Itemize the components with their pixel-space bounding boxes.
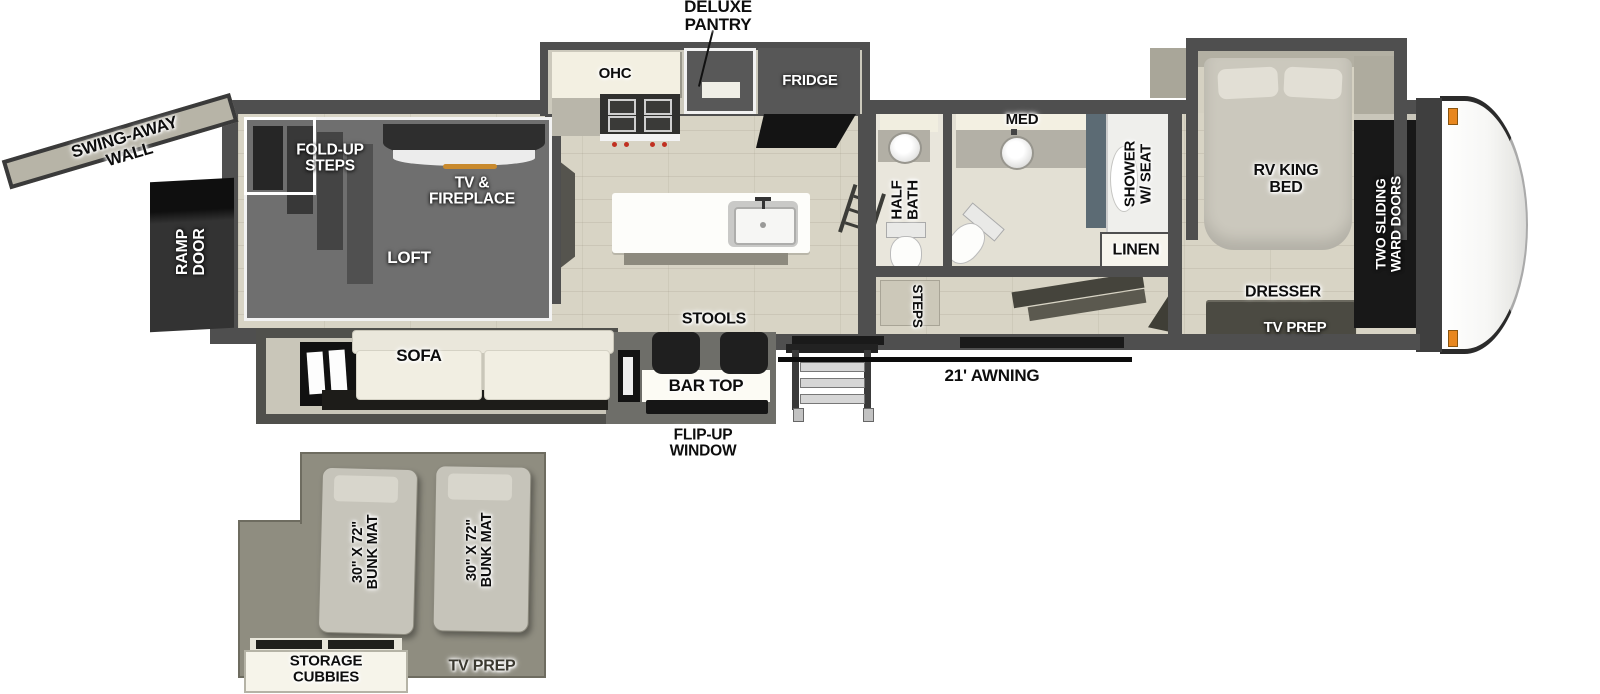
stove-knob (650, 142, 655, 147)
counter-left (552, 98, 602, 136)
ohc-label: OHC (599, 66, 632, 82)
pillow (1217, 66, 1278, 99)
tv-prep-bedroom-label: TV PREP (1264, 320, 1327, 336)
loft-label: LOFT (387, 249, 431, 267)
med-label: MED (1006, 112, 1039, 128)
bath-bedroom-wall (1168, 107, 1182, 334)
stool (652, 332, 700, 374)
cubby-slot (256, 640, 322, 649)
bed-slide-left-wall (1186, 38, 1198, 240)
bar-top-label: BAR TOP (669, 377, 744, 395)
loft-overlay (244, 117, 552, 321)
bunk-pillow (334, 475, 399, 503)
pantry-cabinet (684, 48, 756, 114)
window-pane (329, 349, 348, 392)
pantry-shelf (702, 82, 740, 98)
rv-floorplan: DELUXE PANTRY OHC FRIDGE MED SWING-AWAY … (0, 0, 1600, 694)
entry-steps-foot (793, 408, 804, 422)
marker-light-icon (1448, 330, 1458, 347)
bar-window (618, 350, 640, 402)
half-bath-counter (880, 112, 938, 132)
front-cap (1440, 96, 1528, 354)
bunk-pillow (448, 473, 512, 500)
flip-up-window-label: FLIP-UP WINDOW (670, 428, 737, 461)
half-bath-sink-icon (888, 132, 922, 164)
stove-knob (612, 142, 617, 147)
bunk-mat-right-label: 30" X 72" BUNK MAT (465, 513, 495, 588)
stove-shelf (600, 134, 680, 141)
half-bath-right-wall (943, 107, 952, 276)
window-pane (307, 351, 326, 394)
bed-slide-side-block (1150, 48, 1188, 98)
stove-knob (624, 142, 629, 147)
cubby-slot (328, 640, 394, 649)
right-wall (1416, 98, 1442, 352)
burner-icon (644, 99, 672, 115)
ramp-door-label: RAMP DOOR (175, 228, 209, 275)
awning-line (778, 357, 1132, 362)
bath-faucet-dot (1011, 129, 1017, 135)
bed-slide-top-wall (1186, 38, 1406, 51)
deluxe-pantry-label: DELUXE PANTRY (684, 0, 752, 34)
faucet-stem-icon (762, 200, 765, 209)
sink-drain (760, 222, 766, 228)
awning-label: 21' AWNING (945, 367, 1040, 385)
ward-doors-label: TWO SLIDING WARD DOORS (1373, 176, 1402, 272)
bed-side-cabinet (1354, 56, 1394, 114)
rv-king-bed-label: RV KING BED (1254, 163, 1319, 197)
entry-step-tread (800, 362, 865, 372)
stool (720, 332, 768, 374)
burner-icon (608, 116, 636, 132)
entry-steps-foot (863, 408, 874, 422)
bar-top-edge (646, 400, 768, 414)
fridge-label: FRIDGE (782, 73, 837, 89)
linen-label: LINEN (1112, 243, 1159, 260)
tv-fireplace-label: TV & FIREPLACE (429, 176, 515, 209)
entry-step-tread (800, 378, 865, 388)
stove (600, 94, 680, 134)
bunk-mat-left-label: 30" X 72" BUNK MAT (351, 515, 381, 590)
window-pane (623, 357, 633, 395)
kitchen-bath-wall (858, 107, 876, 334)
fold-up-steps-label: FOLD-UP STEPS (296, 143, 363, 176)
shower-w-seat-label: SHOWER W/ SEAT (1122, 141, 1154, 207)
pillow (1283, 67, 1342, 100)
tv-prep-loft-label: TV PREP (448, 659, 515, 676)
entry-steps (786, 344, 878, 424)
burner-icon (608, 99, 636, 115)
burner-icon (644, 116, 672, 132)
half-bath-label: HALF BATH (889, 180, 921, 220)
bath-sink-icon (1000, 136, 1034, 170)
fireplace-light (443, 164, 497, 169)
island-shadow (624, 253, 788, 265)
shower-glass (1086, 110, 1106, 228)
stove-knob (662, 142, 667, 147)
bath-bottom-wall (868, 266, 1182, 277)
dresser-label: DRESSER (1245, 285, 1321, 302)
entry-step-tread (800, 394, 865, 404)
steps-label: STEPS (910, 284, 924, 327)
top-wall-left (210, 100, 550, 114)
bottom-window-2 (960, 337, 1124, 348)
storage-cubbies-label: STORAGE CUBBIES (290, 653, 363, 685)
sofa-label: SOFA (396, 347, 442, 365)
marker-light-icon (1448, 108, 1458, 125)
stools-label: STOOLS (682, 312, 746, 329)
sofa-cushion (484, 350, 610, 400)
